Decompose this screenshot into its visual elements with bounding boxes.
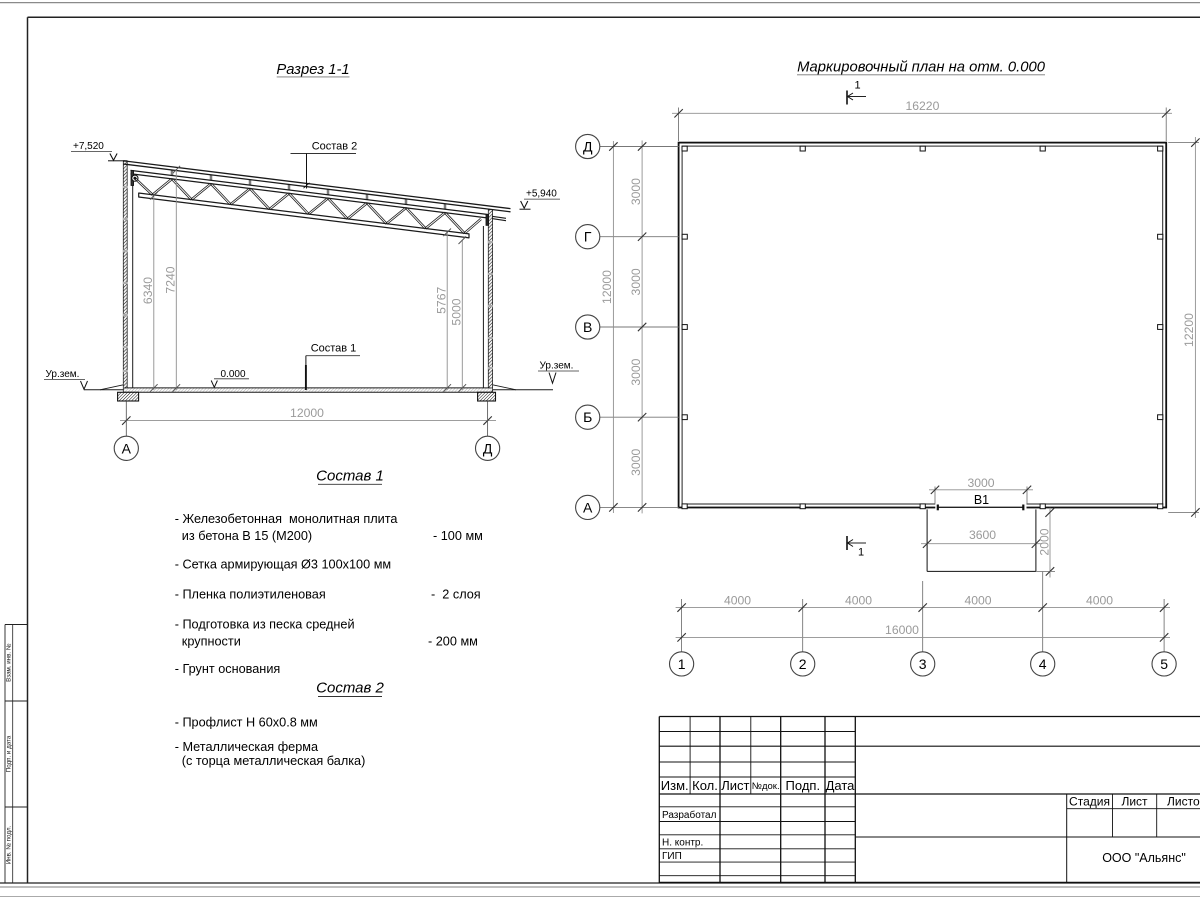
svg-text:Ур.зем.: Ур.зем. — [46, 369, 80, 380]
svg-text:1: 1 — [855, 80, 861, 92]
svg-text:Взам. инв. №: Взам. инв. № — [6, 643, 13, 682]
svg-text:Кол.: Кол. — [692, 778, 718, 793]
svg-text:2000: 2000 — [1038, 528, 1052, 555]
svg-text:Состав 1: Состав 1 — [316, 468, 384, 485]
svg-text:0.000: 0.000 — [221, 369, 246, 380]
svg-text:3000: 3000 — [967, 476, 994, 490]
svg-text:+5,940: +5,940 — [526, 189, 557, 200]
svg-text:3000: 3000 — [629, 358, 643, 385]
svg-text:Разрез 1-1: Разрез 1-1 — [276, 62, 349, 78]
svg-text:Лист: Лист — [1121, 795, 1148, 809]
svg-text:Листов: Листов — [1167, 795, 1200, 809]
svg-text:4000: 4000 — [964, 593, 991, 607]
svg-text:- Профлист Н 60х0.8 мм: - Профлист Н 60х0.8 мм — [175, 716, 318, 730]
svg-text:16220: 16220 — [905, 99, 939, 113]
svg-text:16000: 16000 — [885, 623, 919, 637]
svg-text:- 200 мм: - 200 мм — [428, 635, 478, 649]
svg-text:крупности: крупности — [182, 635, 241, 649]
svg-text:3600: 3600 — [969, 528, 996, 542]
svg-text:7240: 7240 — [164, 266, 178, 293]
svg-text:4000: 4000 — [724, 593, 751, 607]
svg-text:Подп.: Подп. — [786, 778, 821, 793]
svg-text:- Сетка армирующая Ø3 100х100: - Сетка армирующая Ø3 100х100 мм — [175, 558, 391, 572]
svg-text:6340: 6340 — [141, 277, 155, 304]
svg-text:12000: 12000 — [600, 270, 614, 304]
svg-text:Изм.: Изм. — [661, 778, 689, 793]
svg-text:3000: 3000 — [629, 268, 643, 295]
svg-text:2: 2 — [799, 656, 807, 672]
svg-text:А: А — [122, 440, 132, 456]
svg-text:- Подготовка из песка средней: - Подготовка из песка средней — [175, 618, 355, 632]
svg-text:4000: 4000 — [845, 593, 872, 607]
svg-text:Д: Д — [583, 139, 593, 155]
svg-text:Состав 1: Состав 1 — [311, 342, 357, 354]
svg-text:А: А — [583, 499, 593, 515]
svg-text:1: 1 — [858, 546, 864, 558]
svg-text:5000: 5000 — [450, 298, 464, 325]
svg-text:(с торца металлическая балка): (с торца металлическая балка) — [182, 754, 366, 768]
svg-text:- Железобетонная монолитная п: - Железобетонная монолитная плита — [175, 512, 399, 526]
svg-text:Подп. и дата: Подп. и дата — [6, 735, 13, 772]
svg-text:Разработал: Разработал — [662, 809, 717, 821]
svg-text:Лист: Лист — [721, 778, 749, 793]
svg-text:Н. контр.: Н. контр. — [662, 838, 703, 849]
svg-text:В: В — [583, 319, 592, 335]
svg-text:+7,520: +7,520 — [73, 141, 104, 152]
svg-text:5: 5 — [1160, 656, 1168, 672]
svg-text:- Пленка полиэтиленовая: - Пленка полиэтиленовая — [175, 588, 326, 602]
svg-text:В1: В1 — [974, 493, 989, 507]
svg-text:12000: 12000 — [290, 406, 324, 420]
svg-text:Ур.зем.: Ур.зем. — [540, 361, 574, 372]
svg-text:- 2 слоя: - 2 слоя — [431, 588, 481, 602]
svg-text:1: 1 — [678, 656, 686, 672]
svg-text:- Грунт основания: - Грунт основания — [175, 662, 281, 676]
svg-text:3000: 3000 — [629, 178, 643, 205]
svg-text:4: 4 — [1039, 656, 1047, 672]
svg-text:Инв. № подл.: Инв. № подл. — [6, 825, 13, 864]
svg-text:3: 3 — [919, 656, 927, 672]
svg-text:из бетона В 15 (М200): из бетона В 15 (М200) — [182, 529, 312, 543]
svg-text:Б: Б — [583, 409, 592, 425]
svg-text:№док.: №док. — [752, 781, 780, 792]
svg-text:Д: Д — [483, 440, 493, 456]
svg-text:12200: 12200 — [1182, 313, 1196, 347]
svg-text:Г: Г — [584, 229, 592, 245]
svg-text:3000: 3000 — [629, 449, 643, 476]
svg-text:- Металлическая ферма: - Металлическая ферма — [175, 740, 319, 754]
svg-text:Маркировочный план на отм. 0.0: Маркировочный план на отм. 0.000 — [797, 60, 1046, 76]
svg-text:Дата: Дата — [826, 778, 856, 793]
svg-text:Состав 2: Состав 2 — [316, 680, 384, 697]
svg-text:Стадия: Стадия — [1069, 795, 1110, 809]
svg-text:ООО "Альянс": ООО "Альянс" — [1102, 851, 1186, 865]
svg-text:5767: 5767 — [435, 287, 449, 314]
svg-text:ГИП: ГИП — [662, 851, 682, 862]
svg-text:Состав 2: Состав 2 — [312, 141, 358, 153]
svg-text:4000: 4000 — [1086, 593, 1113, 607]
svg-text:- 100 мм: - 100 мм — [433, 529, 483, 543]
